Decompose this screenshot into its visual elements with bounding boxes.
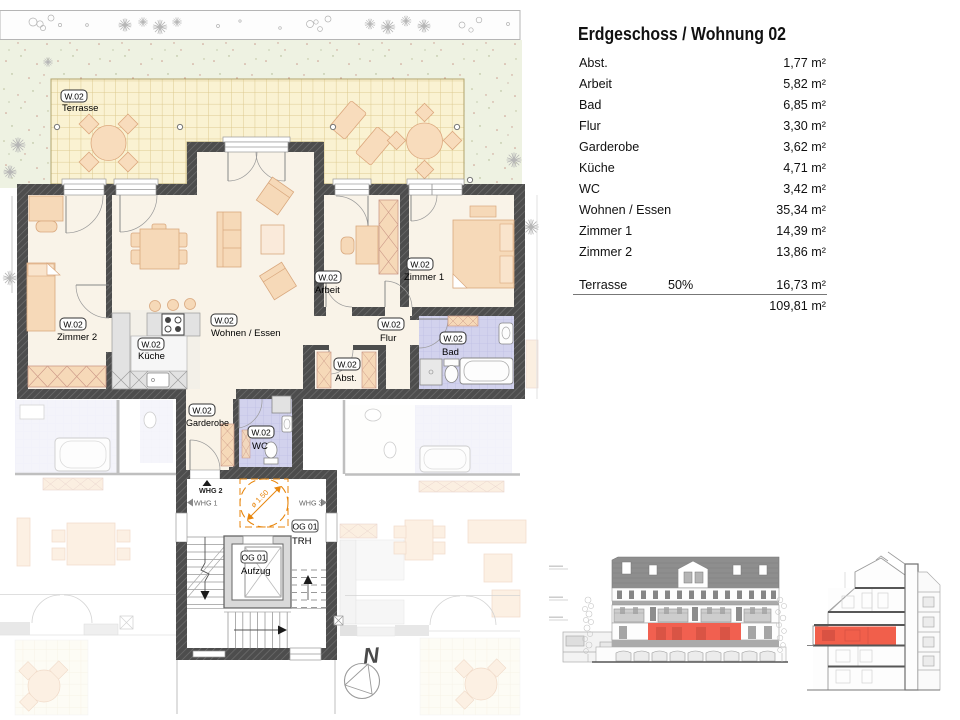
svg-text:W.02: W.02 [410,260,430,270]
svg-text:Terrasse: Terrasse [62,103,98,114]
svg-text:5,82 m²: 5,82 m² [783,77,826,91]
svg-text:WC: WC [252,441,268,452]
svg-text:Abst.: Abst. [335,373,357,384]
svg-text:W.02: W.02 [318,273,338,283]
svg-text:13,86 m²: 13,86 m² [776,245,826,259]
svg-text:Abst.: Abst. [579,56,608,70]
svg-text:Terrasse: Terrasse [579,278,627,292]
svg-text:4,71 m²: 4,71 m² [783,161,826,175]
svg-text:6,85 m²: 6,85 m² [783,98,826,112]
svg-text:Küche: Küche [138,351,165,362]
svg-text:Flur: Flur [380,333,396,344]
svg-text:WHG 1: WHG 1 [194,499,218,508]
svg-text:Wohnen / Essen: Wohnen / Essen [579,203,671,217]
svg-text:W.02: W.02 [443,334,463,344]
svg-text:W.02: W.02 [64,92,84,102]
svg-text:Flur: Flur [579,119,601,133]
svg-text:W.02: W.02 [63,320,83,330]
svg-text:3,42 m²: 3,42 m² [783,182,826,196]
svg-text:Zimmer 2: Zimmer 2 [57,332,97,343]
svg-text:50%: 50% [668,278,693,292]
svg-text:Zimmer 1: Zimmer 1 [579,224,632,238]
svg-text:Erdgeschoss / Wohnung 02: Erdgeschoss / Wohnung 02 [578,24,786,44]
svg-text:Aufzug: Aufzug [241,566,271,577]
svg-text:TRH: TRH [292,536,312,547]
svg-text:WC: WC [579,182,600,196]
svg-text:WHG 3: WHG 3 [299,499,323,508]
svg-text:Küche: Küche [579,161,615,175]
svg-text:Bad: Bad [579,98,601,112]
svg-text:109,81 m²: 109,81 m² [769,299,826,313]
svg-text:3,30 m²: 3,30 m² [783,119,826,133]
svg-text:WHG 2: WHG 2 [199,486,223,495]
svg-text:Arbeit: Arbeit [579,77,612,91]
svg-text:W.02: W.02 [381,320,401,330]
svg-text:OG 01: OG 01 [241,553,266,563]
svg-text:Garderobe: Garderobe [186,418,229,428]
svg-text:W.02: W.02 [141,340,161,350]
svg-text:Garderobe: Garderobe [579,140,639,154]
svg-text:Zimmer 1: Zimmer 1 [404,272,444,283]
svg-text:Zimmer 2: Zimmer 2 [579,245,632,259]
svg-text:16,73 m²: 16,73 m² [776,278,826,292]
svg-text:35,34 m²: 35,34 m² [776,203,826,217]
svg-text:OG 01: OG 01 [292,522,317,532]
svg-text:Arbeit: Arbeit [315,285,340,296]
svg-text:Bad: Bad [442,347,459,358]
svg-text:W.02: W.02 [192,406,212,416]
svg-text:Wohnen / Essen: Wohnen / Essen [211,328,281,339]
svg-text:14,39 m²: 14,39 m² [776,224,826,238]
svg-text:N: N [362,642,381,668]
svg-text:W.02: W.02 [251,428,271,438]
svg-text:1,77 m²: 1,77 m² [783,56,826,70]
svg-text:W.02: W.02 [337,360,357,370]
svg-text:W.02: W.02 [214,316,234,326]
svg-text:3,62 m²: 3,62 m² [783,140,826,154]
